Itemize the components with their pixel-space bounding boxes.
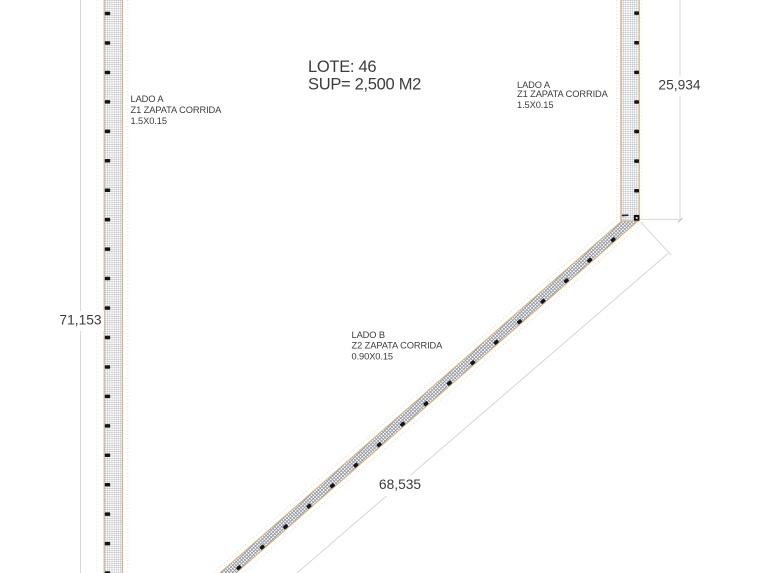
svg-text:25,934: 25,934 <box>658 78 701 93</box>
svg-text:1.5X0.15: 1.5X0.15 <box>517 100 553 110</box>
svg-text:Z1 ZAPATA CORRIDA: Z1 ZAPATA CORRIDA <box>517 89 609 99</box>
svg-text:Z2 ZAPATA CORRIDA: Z2 ZAPATA CORRIDA <box>352 340 444 350</box>
svg-text:LADO A: LADO A <box>131 94 165 104</box>
svg-text:0.90X0.15: 0.90X0.15 <box>352 351 394 361</box>
svg-text:Z1 ZAPATA CORRIDA: Z1 ZAPATA CORRIDA <box>131 105 223 115</box>
svg-text:SUP= 2,500 M2: SUP= 2,500 M2 <box>308 76 421 94</box>
svg-text:LOTE: 46: LOTE: 46 <box>308 58 376 76</box>
svg-text:68,535: 68,535 <box>379 477 422 492</box>
svg-text:1.5X0.15: 1.5X0.15 <box>131 116 167 126</box>
svg-text:LADO B: LADO B <box>352 330 386 340</box>
svg-text:71,153: 71,153 <box>59 313 102 328</box>
